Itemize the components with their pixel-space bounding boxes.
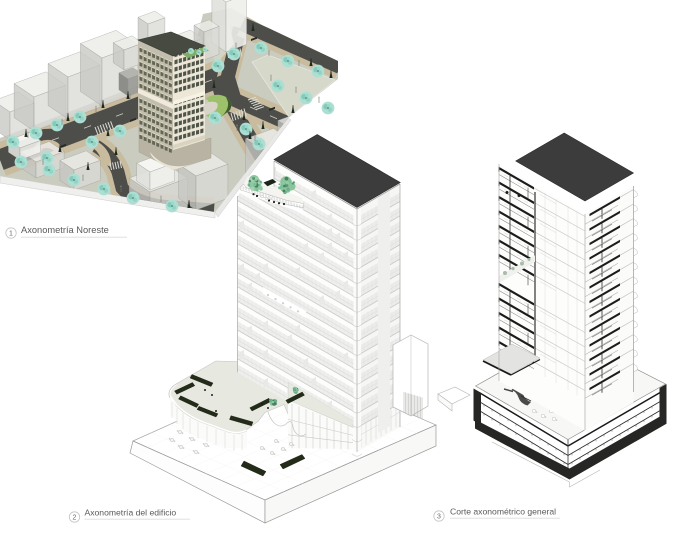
svg-text:Corte axonométrico general: Corte axonométrico general	[450, 507, 556, 517]
svg-text:3: 3	[437, 514, 441, 521]
svg-text:2: 2	[73, 515, 77, 522]
svg-text:Axonometría Noreste: Axonometría Noreste	[21, 225, 109, 235]
svg-text:Axonometría del edificio: Axonometría del edificio	[85, 508, 177, 518]
svg-text:1: 1	[9, 231, 13, 238]
